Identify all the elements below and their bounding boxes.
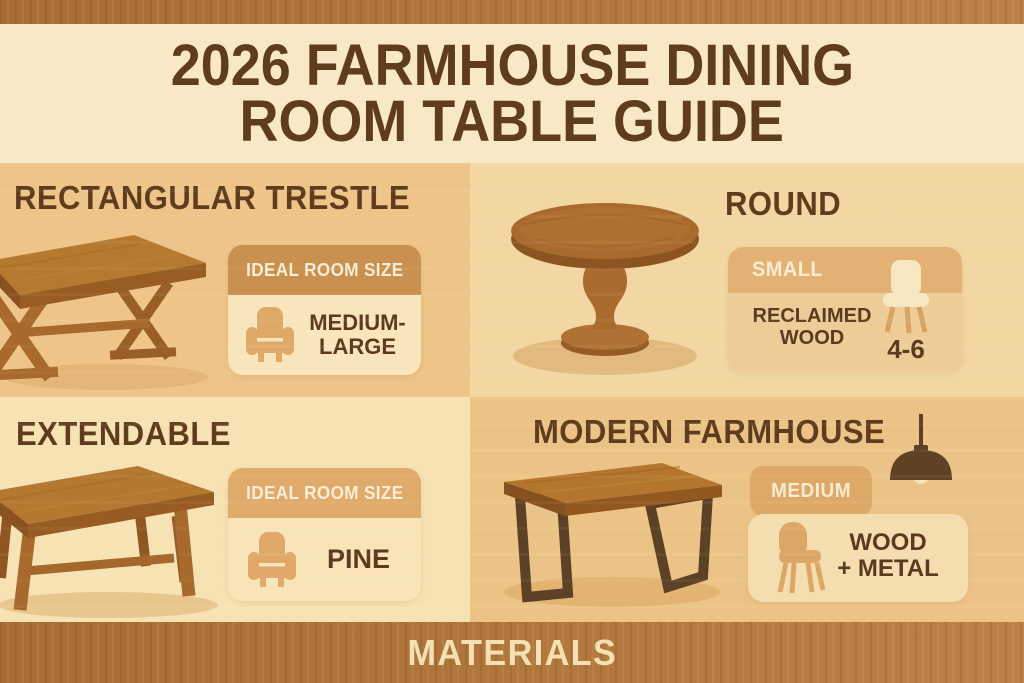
side-chair-icon xyxy=(772,522,828,596)
card-header-label: IDEAL ROOM SIZE xyxy=(246,260,403,281)
card-header: IDEAL ROOM SIZE xyxy=(228,468,421,518)
pendant-light-icon xyxy=(886,414,956,494)
info-card: WOOD + METAL xyxy=(748,514,968,602)
top-wood-band xyxy=(0,0,1024,24)
round-pedestal-table-illustration xyxy=(505,193,705,378)
quadrant-heading: EXTENDABLE xyxy=(16,415,231,453)
quadrant-round: ROUND SMALL RECLAIMED WOOD xyxy=(470,163,1024,397)
info-card: IDEAL ROOM SIZE MEDIUM- LARGE xyxy=(228,245,421,375)
room-size-line-2: LARGE xyxy=(294,335,421,359)
trestle-table-illustration xyxy=(0,225,218,395)
modern-farmhouse-table-illustration xyxy=(482,450,727,610)
header-band: 2026 FARMHOUSE DINING ROOM TABLE GUIDE xyxy=(0,24,1024,163)
armchair-icon xyxy=(248,531,296,589)
info-card: IDEAL ROOM SIZE PINE xyxy=(228,468,421,601)
info-card: SMALL RECLAIMED WOOD 4-6 xyxy=(728,247,962,372)
material-line-2: WOOD xyxy=(742,327,882,349)
room-size-badge: MEDIUM xyxy=(750,466,872,516)
quadrant-heading: RECTANGULAR TRESTLE xyxy=(14,179,410,217)
badge-label: MEDIUM xyxy=(771,480,851,503)
card-body: PINE xyxy=(228,518,421,601)
material-line-1: WOOD xyxy=(822,530,954,556)
material-value: PINE xyxy=(296,545,421,575)
room-size-line-1: MEDIUM- xyxy=(294,311,421,335)
quadrant-modern-farmhouse: MODERN FARMHOUSE MEDIUM xyxy=(470,397,1024,622)
quadrant-extendable: EXTENDABLE IDEAL ROOM SIZE xyxy=(0,397,470,622)
footer-label: MATERIALS xyxy=(407,632,617,674)
card-header-label: SMALL xyxy=(752,258,823,282)
metal-leg xyxy=(650,494,708,587)
card-header-label: IDEAL ROOM SIZE xyxy=(246,483,403,504)
material-value: RECLAIMED WOOD xyxy=(742,305,882,349)
quadrant-heading: MODERN FARMHOUSE xyxy=(533,413,885,451)
material-line-2: + METAL xyxy=(822,556,954,582)
material-line-1: RECLAIMED xyxy=(742,305,882,327)
poster-title-line-1: 2026 FARMHOUSE DINING xyxy=(170,38,853,94)
poster-title-line-2: ROOM TABLE GUIDE xyxy=(240,94,784,150)
infographic-poster: 2026 FARMHOUSE DINING ROOM TABLE GUIDE R… xyxy=(0,0,1024,683)
card-header: IDEAL ROOM SIZE xyxy=(228,245,421,295)
armchair-icon xyxy=(246,306,294,364)
extendable-table-illustration xyxy=(0,458,223,622)
material-value: WOOD + METAL xyxy=(822,530,954,583)
quadrant-heading: ROUND xyxy=(725,185,841,223)
seating-capacity-value: 4-6 xyxy=(878,335,934,364)
room-size-value: MEDIUM- LARGE xyxy=(294,311,421,359)
dining-chair-icon xyxy=(880,260,932,336)
footer-band: MATERIALS xyxy=(0,622,1024,683)
card-body: MEDIUM- LARGE xyxy=(228,295,421,375)
quadrant-rectangular-trestle: RECTANGULAR TRESTLE IDEAL ROOM SIZE xyxy=(0,163,470,397)
